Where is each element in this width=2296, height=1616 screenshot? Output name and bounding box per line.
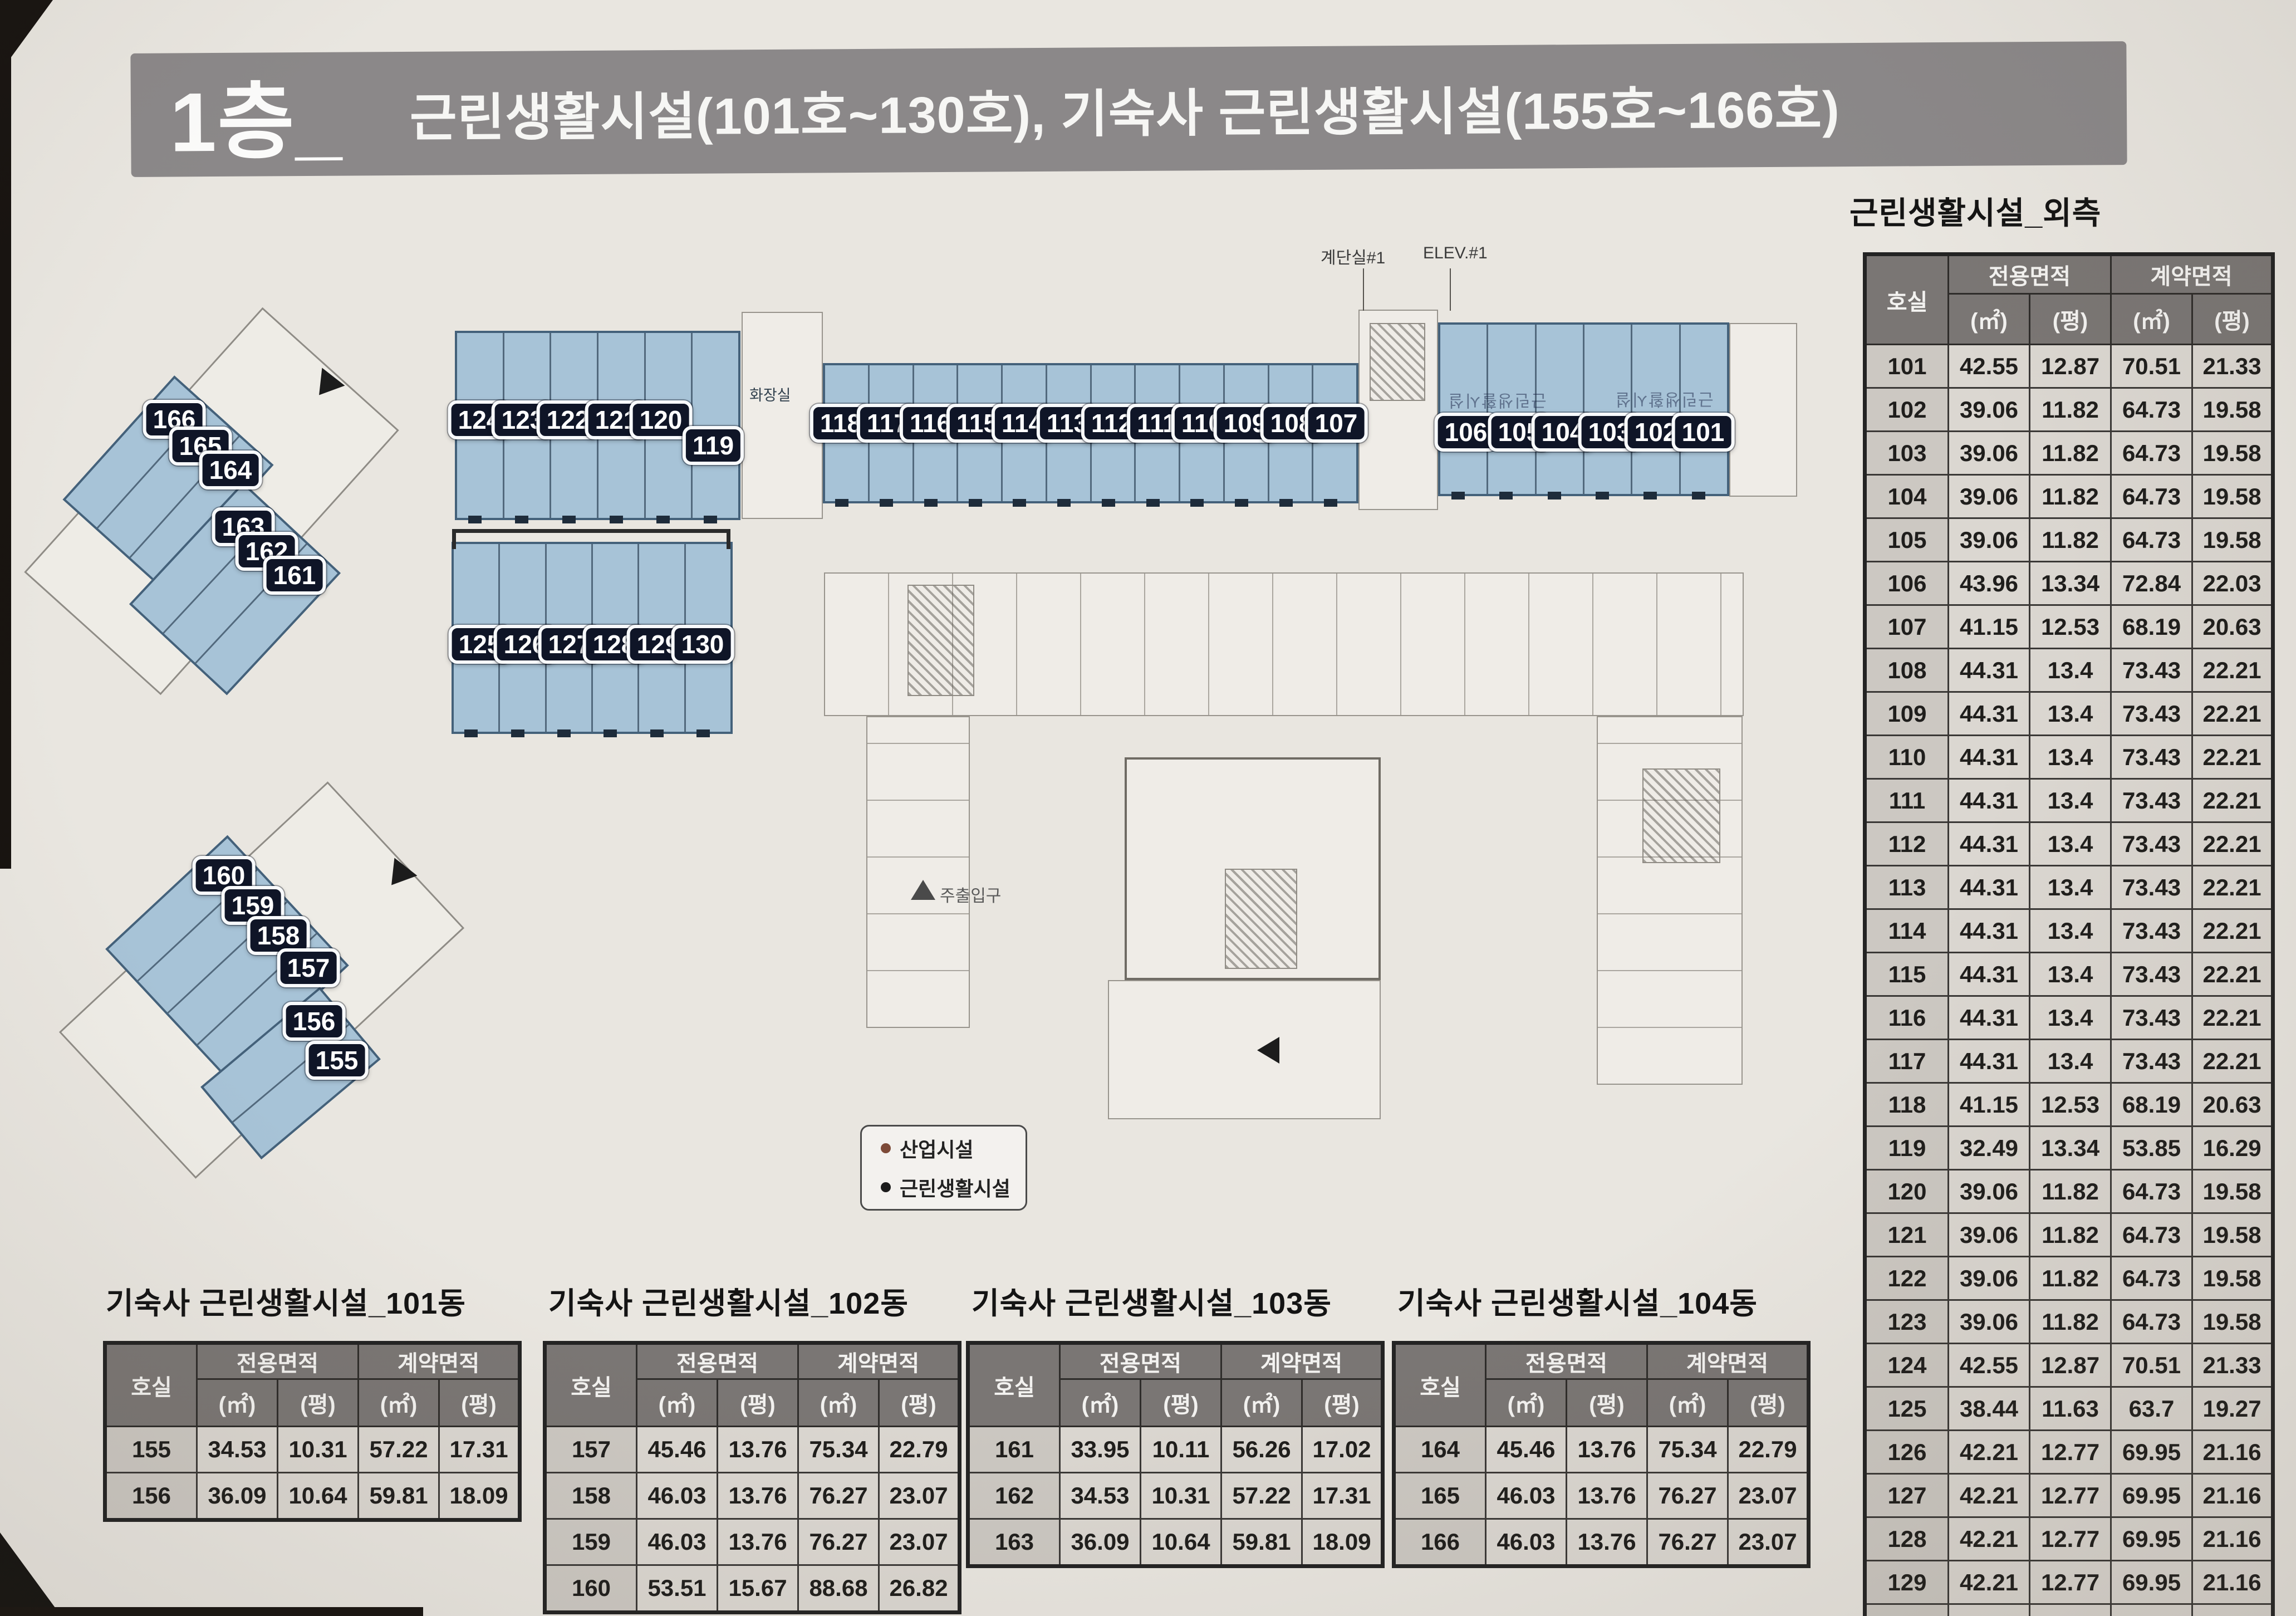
area-value-cell: 12.53 [2030, 1083, 2111, 1127]
table-row: 11644.3113.473.4322.21 [1865, 996, 2273, 1040]
area-value-cell: 13.4 [2030, 953, 2111, 996]
area-value-cell: 17.31 [439, 1427, 520, 1473]
room-number-cell: 110 [1865, 736, 1949, 779]
area-value-cell: 19.58 [2192, 518, 2273, 562]
room-number-cell: 104 [1865, 475, 1949, 518]
col-contract-area: 계약면적 [1221, 1343, 1383, 1379]
area-value-cell: 42.21 [1949, 1474, 2030, 1517]
room-number-cell: 128 [1865, 1517, 1949, 1561]
block-caption: 근린생활시설 [1615, 389, 1714, 413]
area-value-cell: 13.4 [2030, 822, 2111, 866]
area-value-cell: 21.16 [2192, 1561, 2273, 1604]
area-value-cell: 44.31 [1949, 866, 2030, 909]
main-entrance-arrow-icon [911, 880, 935, 900]
leader-line [1363, 268, 1364, 311]
table-row: 12642.2112.7769.9521.16 [1865, 1431, 2273, 1474]
room-number-cell: 130 [1865, 1604, 1949, 1616]
room-number-cell: 126 [1865, 1431, 1949, 1474]
col-contract-area: 계약면적 [359, 1343, 520, 1379]
area-value-cell: 42.55 [1949, 345, 2030, 388]
photo-edge [0, 0, 11, 869]
area-value-cell: 34.53 [197, 1427, 278, 1473]
room-number-cell: 158 [545, 1473, 637, 1519]
col-room: 호실 [1865, 254, 1949, 345]
area-value-cell: 11.82 [2030, 518, 2111, 562]
area-value-cell: 21.33 [2192, 1344, 2273, 1387]
dorm-table-title-101: 기숙사 근린생활시설_101동 [106, 1279, 466, 1323]
area-value-cell: 19.58 [2192, 388, 2273, 432]
area-value-cell: 10.64 [278, 1473, 359, 1520]
area-value-cell: 70.51 [2111, 1344, 2192, 1387]
area-value-cell: 11.82 [2030, 432, 2111, 475]
area-value-cell: 64.73 [2111, 475, 2192, 518]
col-contract-area: 계약면적 [2111, 254, 2273, 294]
dimension-bracket [452, 529, 730, 549]
col-exclusive-area: 전용면적 [637, 1343, 798, 1379]
main-entrance-annotation: 주출입구 [940, 882, 1001, 907]
table-row: 10741.1512.5368.1920.63 [1865, 605, 2273, 649]
area-value-cell: 53.85 [2111, 1127, 2192, 1170]
dorm-table-103: 호실 전용면적 계약면적 (㎡) (평) (㎡) (평) 16133.9510.… [966, 1341, 1385, 1568]
area-value-cell: 46.03 [637, 1473, 718, 1519]
table-row: 15946.0313.7676.2723.07 [545, 1519, 960, 1565]
area-value-cell: 19.58 [2192, 475, 2273, 518]
room-number-cell: 115 [1865, 953, 1949, 996]
area-value-cell: 42.21 [1949, 1561, 2030, 1604]
col-unit-py: (평) [1567, 1379, 1647, 1427]
area-value-cell: 64.73 [2111, 432, 2192, 475]
room-number-cell: 165 [1394, 1473, 1486, 1519]
area-value-cell: 13.4 [2030, 692, 2111, 736]
dorm-table-102: 호실 전용면적 계약면적 (㎡) (평) (㎡) (평) 15745.4613.… [543, 1341, 961, 1614]
table-row: 16133.9510.1156.2617.02 [968, 1427, 1383, 1473]
room-number-cell: 121 [1865, 1213, 1949, 1257]
room-label-155: 155 [306, 1041, 369, 1080]
area-value-cell: 10.64 [1141, 1519, 1221, 1566]
area-value-cell: 21.33 [2192, 345, 2273, 388]
room-number-cell: 119 [1865, 1127, 1949, 1170]
stair-hatch [1642, 768, 1720, 863]
area-value-cell: 32.49 [1949, 1127, 2030, 1170]
area-value-cell: 73.43 [2111, 909, 2192, 953]
area-value-cell: 23.07 [879, 1519, 960, 1565]
area-value-cell: 73.43 [2111, 779, 2192, 822]
area-value-cell: 12.77 [2030, 1474, 2111, 1517]
table-row: 10439.0611.8264.7319.58 [1865, 475, 2273, 518]
room-number-cell: 127 [1865, 1474, 1949, 1517]
area-value-cell: 41.15 [1949, 605, 2030, 649]
area-value-cell: 13.76 [1567, 1427, 1647, 1473]
entrance-arrow-icon [1257, 1037, 1279, 1064]
area-value-cell: 13.76 [1567, 1519, 1647, 1566]
industrial-dot-icon [881, 1143, 891, 1153]
table-row: 16445.4613.7675.3422.79 [1394, 1427, 1809, 1473]
area-value-cell: 69.95 [2111, 1517, 2192, 1561]
elevator-annotation: ELEV.#1 [1423, 244, 1488, 263]
room-number-cell: 129 [1865, 1561, 1949, 1604]
area-value-cell: 13.76 [718, 1427, 798, 1473]
area-value-cell: 44.31 [1949, 736, 2030, 779]
area-value-cell: 64.73 [2111, 388, 2192, 432]
table-row: 15636.0910.6459.8118.09 [105, 1473, 520, 1520]
area-value-cell: 73.43 [2111, 736, 2192, 779]
col-unit-m2: (㎡) [2111, 294, 2192, 345]
area-value-cell: 13.4 [2030, 996, 2111, 1040]
room-number-cell: 125 [1865, 1387, 1949, 1431]
area-value-cell: 34.53 [1060, 1473, 1141, 1519]
room-number-cell: 109 [1865, 692, 1949, 736]
area-value-cell: 22.21 [2192, 1040, 2273, 1083]
area-value-cell: 38.44 [1949, 1387, 2030, 1431]
table-row: 12942.2112.7769.9521.16 [1865, 1561, 2273, 1604]
dorm-table-102-body: 15745.4613.7675.3422.7915846.0313.7676.2… [545, 1427, 960, 1613]
table-row: 10643.9613.3472.8422.03 [1865, 562, 2273, 605]
page-title: 근린생활시설(101호~130호), 기숙사 근린생활시설(155호~166호) [409, 68, 1840, 151]
col-unit-py: (평) [1141, 1379, 1221, 1427]
room-number-cell: 117 [1865, 1040, 1949, 1083]
area-value-cell: 11.82 [2030, 388, 2111, 432]
col-unit-py: (평) [439, 1379, 520, 1427]
area-value-cell: 44.31 [1949, 1040, 2030, 1083]
room-number-cell: 122 [1865, 1257, 1949, 1300]
area-value-cell: 13.4 [2030, 779, 2111, 822]
area-value-cell: 13.4 [2030, 1040, 2111, 1083]
area-value-cell: 75.34 [1647, 1427, 1728, 1473]
area-value-cell: 42.55 [1949, 1344, 2030, 1387]
area-value-cell: 22.21 [2192, 779, 2273, 822]
area-value-cell: 11.82 [2030, 1170, 2111, 1213]
col-exclusive-area: 전용면적 [197, 1343, 359, 1379]
area-value-cell: 44.31 [1949, 692, 2030, 736]
dorm-table-104: 호실 전용면적 계약면적 (㎡) (평) (㎡) (평) 16445.4613.… [1392, 1341, 1811, 1568]
stair-hatch [1370, 323, 1425, 401]
table-row: 10539.0611.8264.7319.58 [1865, 518, 2273, 562]
col-exclusive-area: 전용면적 [1486, 1343, 1647, 1379]
area-value-cell: 33.95 [1060, 1427, 1141, 1473]
area-value-cell: 68.19 [2111, 1083, 2192, 1127]
area-value-cell: 13.4 [2030, 909, 2111, 953]
photo-edge [0, 1607, 423, 1616]
area-value-cell: 21.16 [2192, 1474, 2273, 1517]
col-unit-m2: (㎡) [1486, 1379, 1567, 1427]
table-row: 11244.3113.473.4322.21 [1865, 822, 2273, 866]
room-number-cell: 112 [1865, 822, 1949, 866]
area-value-cell: 11.82 [2030, 1213, 2111, 1257]
col-room: 호실 [1394, 1343, 1486, 1427]
col-room: 호실 [968, 1343, 1060, 1427]
col-unit-m2: (㎡) [197, 1379, 278, 1427]
col-unit-py: (평) [1728, 1379, 1809, 1427]
area-value-cell: 68.19 [2111, 605, 2192, 649]
area-value-cell: 59.81 [1221, 1519, 1302, 1566]
table-row: 10339.0611.8264.7319.58 [1865, 432, 2273, 475]
area-value-cell: 11.82 [2030, 475, 2111, 518]
room-number-cell: 123 [1865, 1300, 1949, 1344]
area-value-cell: 59.81 [359, 1473, 439, 1520]
area-value-cell: 19.58 [2192, 1213, 2273, 1257]
area-value-cell: 64.73 [2111, 1213, 2192, 1257]
area-value-cell: 57.22 [359, 1427, 439, 1473]
room-number-cell: 120 [1865, 1170, 1949, 1213]
area-value-cell: 11.63 [2030, 1604, 2111, 1616]
page-title-banner: 1층_ 근린생활시설(101호~130호), 기숙사 근린생활시설(155호~1… [130, 41, 2127, 177]
area-value-cell: 45.46 [637, 1427, 718, 1473]
table-row: 11344.3113.473.4322.21 [1865, 866, 2273, 909]
dorm-table-title-103: 기숙사 근린생활시설_103동 [972, 1279, 1332, 1323]
legend: 산업시설 근린생활시설 [860, 1125, 1027, 1211]
area-value-cell: 22.21 [2192, 649, 2273, 692]
area-value-cell: 22.21 [2192, 822, 2273, 866]
area-value-cell: 22.21 [2192, 866, 2273, 909]
area-value-cell: 19.58 [2192, 1257, 2273, 1300]
col-unit-m2: (㎡) [798, 1379, 879, 1427]
room-number-cell: 124 [1865, 1344, 1949, 1387]
room-unit [693, 333, 738, 518]
area-value-cell: 73.43 [2111, 996, 2192, 1040]
area-value-cell: 43.96 [1949, 562, 2030, 605]
area-value-cell: 20.63 [2192, 605, 2273, 649]
room-label-101: 101 [1672, 413, 1735, 452]
room-number-cell: 105 [1865, 518, 1949, 562]
area-value-cell: 13.34 [2030, 1127, 2111, 1170]
area-value-cell: 44.31 [1949, 953, 2030, 996]
col-exclusive-area: 전용면적 [1060, 1343, 1221, 1379]
area-value-cell: 13.76 [718, 1473, 798, 1519]
area-value-cell: 73.43 [2111, 692, 2192, 736]
col-unit-m2: (㎡) [637, 1379, 718, 1427]
col-unit-py: (평) [718, 1379, 798, 1427]
area-value-cell: 12.77 [2030, 1431, 2111, 1474]
area-value-cell: 12.53 [2030, 605, 2111, 649]
floor-label: 1층_ [169, 53, 343, 175]
area-value-cell: 22.21 [2192, 909, 2273, 953]
area-value-cell: 41.15 [1949, 1083, 2030, 1127]
room-label-164: 164 [199, 450, 262, 489]
room-label-156: 156 [283, 1002, 346, 1041]
area-value-cell: 57.22 [1221, 1473, 1302, 1519]
area-value-cell: 13.4 [2030, 736, 2111, 779]
area-value-cell: 88.68 [798, 1565, 879, 1613]
area-value-cell: 56.26 [1221, 1427, 1302, 1473]
table-row: 12239.0611.8264.7319.58 [1865, 1257, 2273, 1300]
area-value-cell: 18.09 [439, 1473, 520, 1520]
dorm-table-103-body: 16133.9510.1156.2617.0216234.5310.3157.2… [968, 1427, 1383, 1566]
room-number-cell: 164 [1394, 1427, 1486, 1473]
table-row: 10844.3113.473.4322.21 [1865, 649, 2273, 692]
col-exclusive-area: 전용면적 [1949, 254, 2111, 294]
area-value-cell: 53.51 [637, 1565, 718, 1613]
area-value-cell: 64.73 [2111, 1170, 2192, 1213]
area-value-cell: 13.4 [2030, 649, 2111, 692]
industrial-plan-left-wing [866, 716, 970, 1028]
table-row: 11144.3113.473.4322.21 [1865, 779, 2273, 822]
dorm-table-101: 호실 전용면적 계약면적 (㎡) (평) (㎡) (평) 15534.5310.… [103, 1341, 522, 1522]
area-value-cell: 22.21 [2192, 692, 2273, 736]
table-row: 12139.0611.8264.7319.58 [1865, 1213, 2273, 1257]
col-unit-m2: (㎡) [1949, 294, 2030, 345]
stair-annotation: 계단실#1 [1321, 244, 1385, 268]
dorm-table-title-104: 기숙사 근린생활시설_104동 [1397, 1279, 1758, 1323]
area-value-cell: 63.7 [2111, 1387, 2192, 1431]
area-value-cell: 19.58 [2192, 1170, 2273, 1213]
area-value-cell: 11.82 [2030, 1257, 2111, 1300]
area-value-cell: 44.31 [1949, 822, 2030, 866]
area-value-cell: 76.27 [1647, 1473, 1728, 1519]
room-label-157: 157 [277, 948, 340, 987]
col-unit-m2: (㎡) [1221, 1379, 1302, 1427]
room-number-cell: 102 [1865, 388, 1949, 432]
area-value-cell: 69.95 [2111, 1561, 2192, 1604]
area-value-cell: 46.03 [1486, 1473, 1567, 1519]
table-row: 13038.4411.6363.719.27 [1865, 1604, 2273, 1616]
legend-label: 근린생활시설 [900, 1173, 1010, 1202]
area-value-cell: 13.4 [2030, 866, 2111, 909]
room-number-cell: 163 [968, 1519, 1060, 1566]
area-value-cell: 64.73 [2111, 1300, 2192, 1344]
area-value-cell: 16.29 [2192, 1127, 2273, 1170]
area-value-cell: 13.34 [2030, 562, 2111, 605]
table-row: 12339.0611.8264.7319.58 [1865, 1300, 2273, 1344]
room-number-cell: 107 [1865, 605, 1949, 649]
area-value-cell: 73.43 [2111, 953, 2192, 996]
area-value-cell: 19.58 [2192, 1300, 2273, 1344]
table-row: 15745.4613.7675.3422.79 [545, 1427, 960, 1473]
dorm-table-101-body: 15534.5310.3157.2217.3115636.0910.6459.8… [105, 1427, 520, 1520]
col-contract-area: 계약면적 [1647, 1343, 1809, 1379]
legend-label: 산업시설 [900, 1134, 973, 1163]
table-row: 16053.5115.6788.6826.82 [545, 1565, 960, 1613]
area-value-cell: 45.46 [1486, 1427, 1567, 1473]
area-value-cell: 39.06 [1949, 1213, 2030, 1257]
outer-area-table: 호실 전용면적 계약면적 (㎡) (평) (㎡) (평) 10142.5512.… [1863, 252, 2275, 1616]
room-number-cell: 155 [105, 1427, 197, 1473]
leader-line [1450, 268, 1451, 311]
area-value-cell: 39.06 [1949, 475, 2030, 518]
area-value-cell: 36.09 [1060, 1519, 1141, 1566]
dorm-table-104-body: 16445.4613.7675.3422.7916546.0313.7676.2… [1394, 1427, 1809, 1566]
area-value-cell: 38.44 [1949, 1604, 2030, 1616]
area-value-cell: 12.87 [2030, 345, 2111, 388]
area-value-cell: 64.73 [2111, 518, 2192, 562]
area-value-cell: 70.51 [2111, 345, 2192, 388]
area-value-cell: 22.03 [2192, 562, 2273, 605]
col-unit-py: (평) [879, 1379, 960, 1427]
area-value-cell: 11.63 [2030, 1387, 2111, 1431]
area-value-cell: 44.31 [1949, 649, 2030, 692]
col-unit-m2: (㎡) [1060, 1379, 1141, 1427]
stair-hatch [907, 585, 974, 696]
area-value-cell: 39.06 [1949, 1257, 2030, 1300]
area-value-cell: 36.09 [197, 1473, 278, 1520]
table-row: 11444.3113.473.4322.21 [1865, 909, 2273, 953]
room-number-cell: 157 [545, 1427, 637, 1473]
table-row: 11544.3113.473.4322.21 [1865, 953, 2273, 996]
area-value-cell: 42.21 [1949, 1517, 2030, 1561]
area-value-cell: 22.79 [1728, 1427, 1809, 1473]
area-value-cell: 12.87 [2030, 1344, 2111, 1387]
room-number-cell: 114 [1865, 909, 1949, 953]
area-value-cell: 39.06 [1949, 1170, 2030, 1213]
legend-item: 산업시설 [881, 1134, 1026, 1163]
table-row: 11932.4913.3453.8516.29 [1865, 1127, 2273, 1170]
room-number-cell: 101 [1865, 345, 1949, 388]
legend-item: 근린생활시설 [881, 1173, 1026, 1202]
area-value-cell: 12.77 [2030, 1517, 2111, 1561]
area-value-cell: 39.06 [1949, 518, 2030, 562]
outer-table-body: 10142.5512.8770.5121.3310239.0611.8264.7… [1865, 345, 2273, 1616]
area-value-cell: 22.21 [2192, 736, 2273, 779]
room-number-cell: 113 [1865, 866, 1949, 909]
room-number-cell: 156 [105, 1473, 197, 1520]
room-label-107: 107 [1305, 404, 1368, 443]
room-number-cell: 159 [545, 1519, 637, 1565]
area-value-cell: 22.21 [2192, 953, 2273, 996]
area-value-cell: 44.31 [1949, 996, 2030, 1040]
area-value-cell: 63.7 [2111, 1604, 2192, 1616]
area-value-cell: 26.82 [879, 1565, 960, 1613]
table-row: 12442.5512.8770.5121.33 [1865, 1344, 2273, 1387]
area-value-cell: 17.02 [1302, 1427, 1383, 1473]
area-value-cell: 44.31 [1949, 909, 2030, 953]
area-value-cell: 69.95 [2111, 1431, 2192, 1474]
table-row: 12039.0611.8264.7319.58 [1865, 1170, 2273, 1213]
area-value-cell: 12.77 [2030, 1561, 2111, 1604]
area-value-cell: 10.31 [1141, 1473, 1221, 1519]
table-row: 12538.4411.6363.719.27 [1865, 1387, 2273, 1431]
col-room: 호실 [545, 1343, 637, 1427]
area-value-cell: 73.43 [2111, 822, 2192, 866]
area-value-cell: 39.06 [1949, 1300, 2030, 1344]
col-room: 호실 [105, 1343, 197, 1427]
right-end-core [1729, 323, 1797, 497]
table-row: 15846.0313.7676.2723.07 [545, 1473, 960, 1519]
area-value-cell: 13.76 [718, 1519, 798, 1565]
room-number-cell: 166 [1394, 1519, 1486, 1566]
area-value-cell: 72.84 [2111, 562, 2192, 605]
col-unit-py: (평) [2030, 294, 2111, 345]
area-value-cell: 76.27 [798, 1519, 879, 1565]
room-number-cell: 106 [1865, 562, 1949, 605]
toilet-annotation: 화장실 [749, 383, 791, 405]
area-value-cell: 69.95 [2111, 1474, 2192, 1517]
table-row: 12742.2112.7769.9521.16 [1865, 1474, 2273, 1517]
area-value-cell: 10.11 [1141, 1427, 1221, 1473]
col-unit-m2: (㎡) [1647, 1379, 1728, 1427]
col-unit-m2: (㎡) [359, 1379, 439, 1427]
area-value-cell: 73.43 [2111, 649, 2192, 692]
room-number-cell: 111 [1865, 779, 1949, 822]
col-unit-py: (평) [278, 1379, 359, 1427]
room-number-cell: 118 [1865, 1083, 1949, 1127]
room-number-cell: 116 [1865, 996, 1949, 1040]
table-row: 16646.0313.7676.2723.07 [1394, 1519, 1809, 1566]
table-row: 11744.3113.473.4322.21 [1865, 1040, 2273, 1083]
area-value-cell: 73.43 [2111, 1040, 2192, 1083]
table-row: 16546.0313.7676.2723.07 [1394, 1473, 1809, 1519]
floorplan-sheet: 1층_ 근린생활시설(101호~130호), 기숙사 근린생활시설(155호~1… [0, 0, 2296, 1616]
table-row: 11044.3113.473.4322.21 [1865, 736, 2273, 779]
area-value-cell: 18.09 [1302, 1519, 1383, 1566]
photo-edge [0, 1532, 61, 1616]
area-value-cell: 76.27 [798, 1473, 879, 1519]
area-value-cell: 22.79 [879, 1427, 960, 1473]
area-value-cell: 39.06 [1949, 388, 2030, 432]
col-contract-area: 계약면적 [798, 1343, 960, 1379]
table-row: 16336.0910.6459.8118.09 [968, 1519, 1383, 1566]
area-value-cell: 22.21 [2192, 996, 2273, 1040]
industrial-plan-bottom-rooms [1108, 980, 1381, 1119]
room-label-161: 161 [263, 556, 326, 595]
